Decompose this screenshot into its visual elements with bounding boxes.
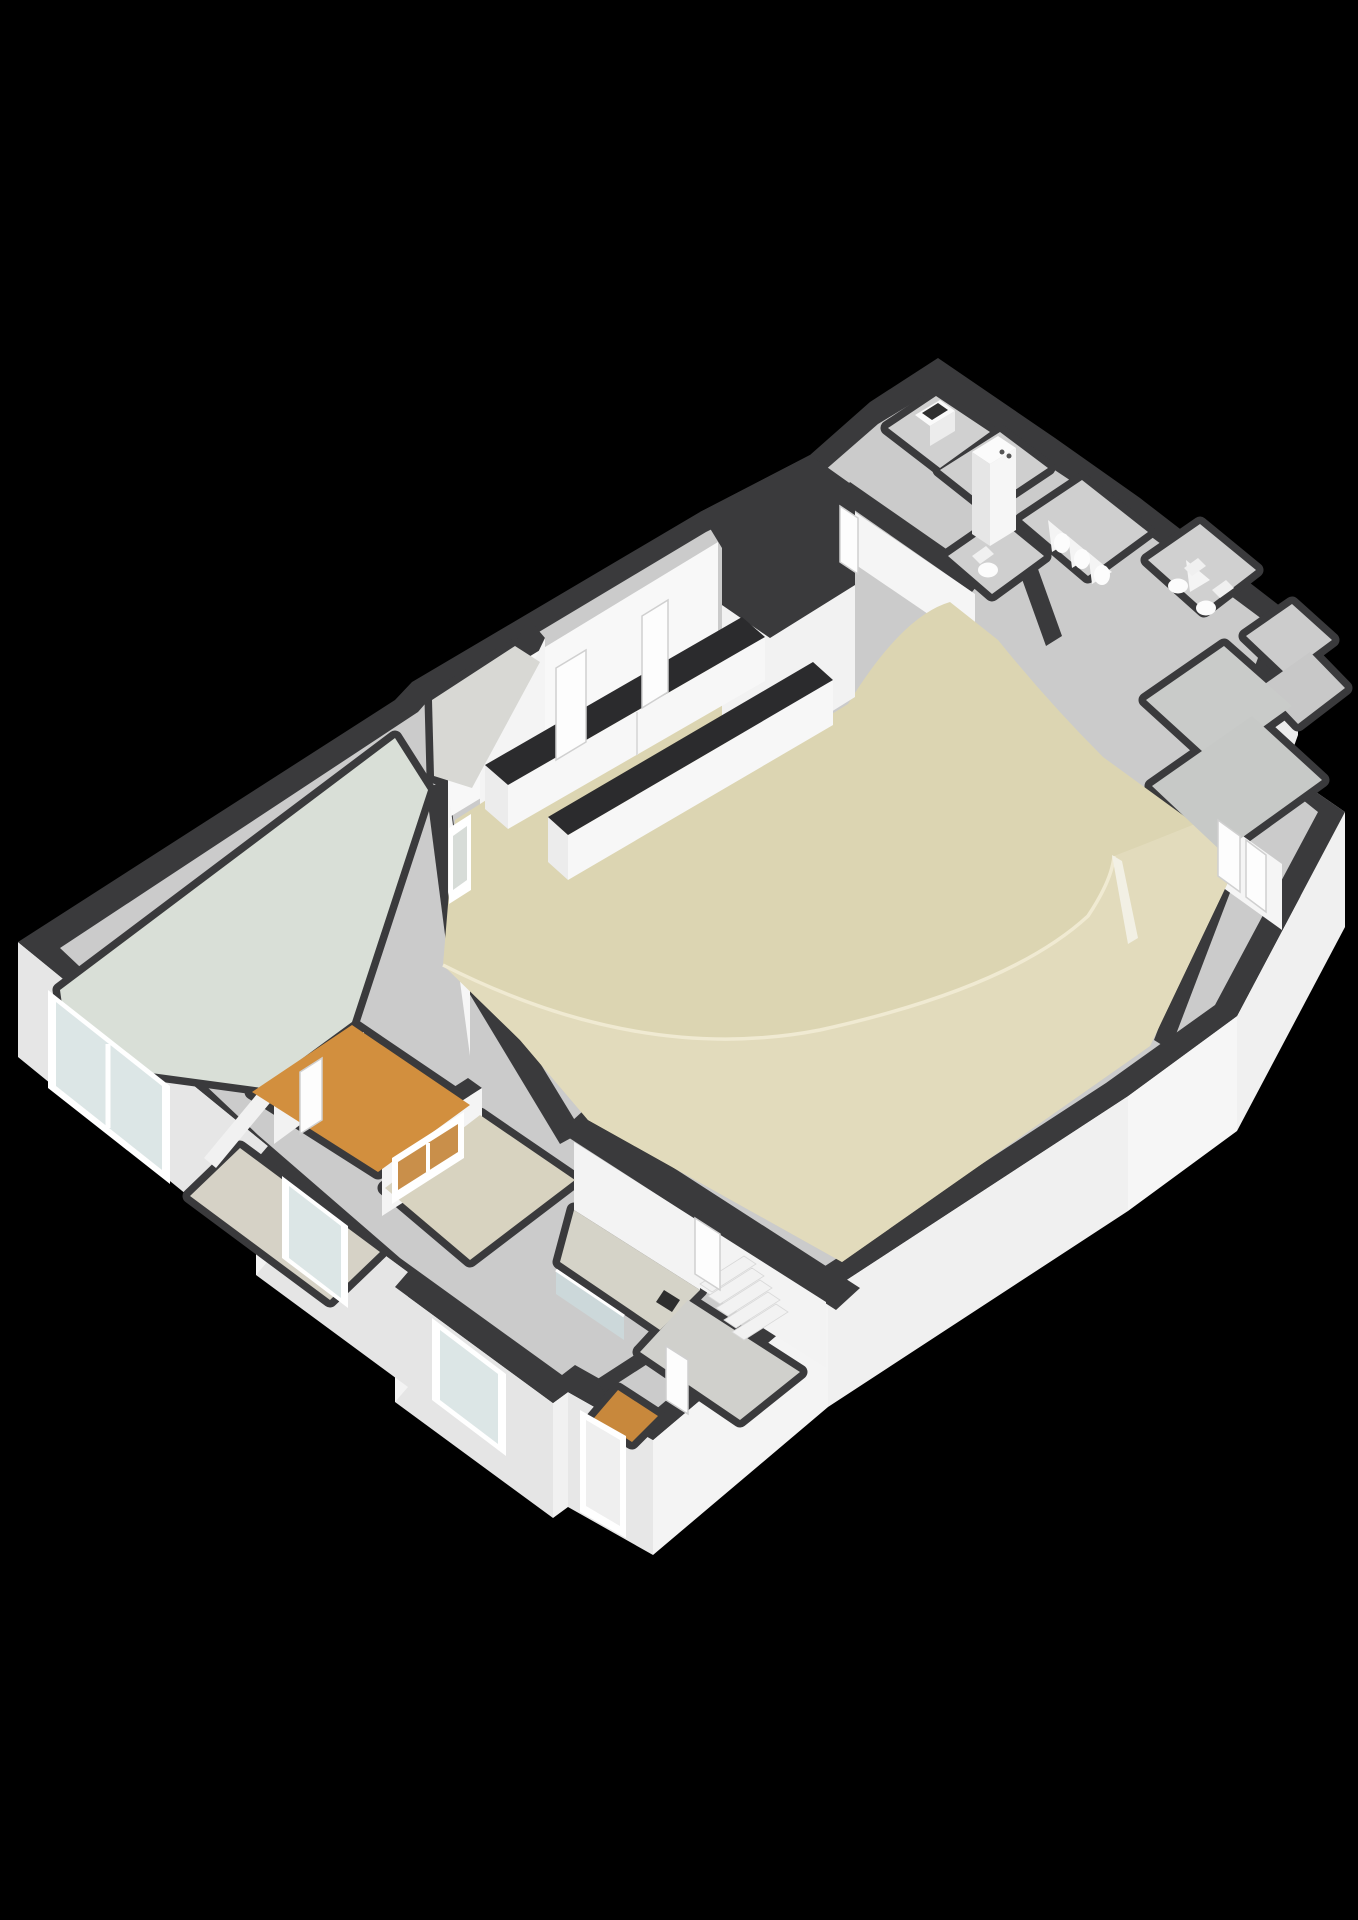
- urinal-2: [1074, 549, 1090, 569]
- floorplan-canvas: [0, 0, 1358, 1920]
- door-hall-nw: [556, 650, 586, 760]
- pentagon-hatch-glass: [453, 826, 467, 890]
- door-hall-nw-2: [642, 600, 668, 708]
- door-orange-room: [300, 1058, 322, 1134]
- door-chimney: [840, 506, 858, 574]
- urinal-1: [1054, 533, 1070, 553]
- toilet-2: [1196, 601, 1216, 616]
- boiler-knob-1: [1000, 450, 1005, 455]
- boiler-knob-2: [1007, 454, 1012, 459]
- toilet-3: [978, 563, 998, 578]
- floorplan-stage: [0, 0, 1358, 1920]
- urinal-3: [1094, 565, 1110, 585]
- boiler-side: [972, 452, 990, 546]
- boiler-front: [990, 448, 1016, 546]
- toilet-1: [1168, 579, 1188, 594]
- ext-face-sw-step1: [553, 1392, 568, 1518]
